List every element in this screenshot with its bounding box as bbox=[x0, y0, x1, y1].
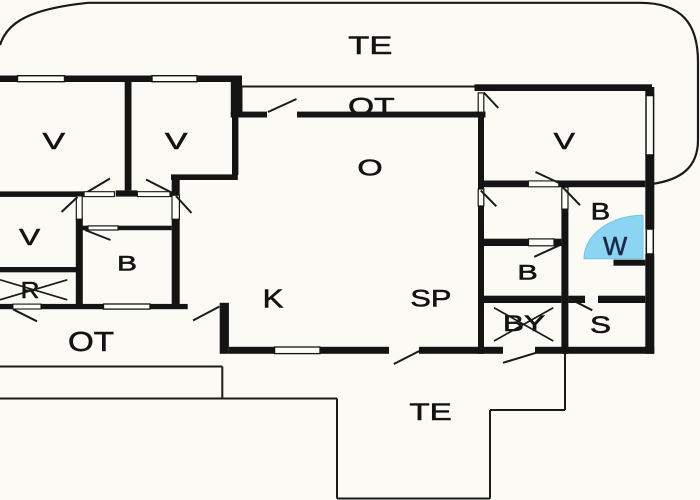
svg-text:K: K bbox=[263, 286, 284, 314]
svg-text:O: O bbox=[357, 155, 382, 181]
svg-text:W: W bbox=[603, 233, 627, 261]
svg-text:B: B bbox=[117, 252, 137, 276]
svg-text:V: V bbox=[554, 128, 576, 154]
svg-text:TE: TE bbox=[348, 32, 392, 60]
svg-text:B: B bbox=[517, 261, 537, 285]
svg-text:V: V bbox=[43, 128, 67, 154]
svg-text:B: B bbox=[591, 200, 611, 226]
svg-text:OT: OT bbox=[68, 326, 114, 357]
svg-text:TE: TE bbox=[409, 399, 451, 426]
svg-text:V: V bbox=[165, 128, 189, 154]
svg-text:V: V bbox=[19, 224, 41, 250]
svg-text:SP: SP bbox=[410, 286, 451, 313]
svg-text:S: S bbox=[590, 312, 611, 339]
